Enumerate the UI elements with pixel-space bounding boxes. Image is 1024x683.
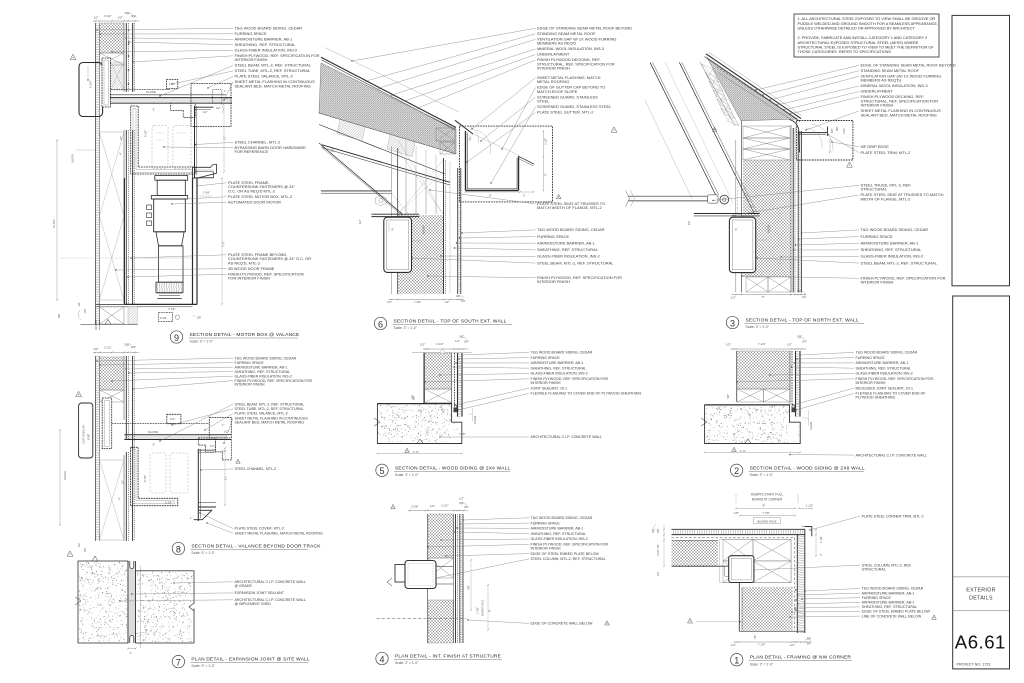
svg-text:3/8": 3/8" — [656, 528, 660, 533]
svg-text:2 1/2": 2 1/2" — [843, 127, 846, 134]
svg-text:5 3/4": 5 3/4" — [89, 81, 93, 88]
svg-text:T&G WOOD BOARD SIDING, CEDAR: T&G WOOD BOARD SIDING, CEDAR — [856, 351, 918, 355]
svg-text:METAL ROOFING: METAL ROOFING — [537, 79, 569, 84]
svg-text:INTERIOR FINISH: INTERIOR FINISH — [861, 280, 894, 285]
svg-text:INTERIOR FINISH: INTERIOR FINISH — [861, 103, 894, 108]
svg-text:3/8": 3/8" — [197, 316, 202, 320]
svg-text:MATCH WIDTH OF FLANGE, MTL-2: MATCH WIDTH OF FLANGE, MTL-2 — [537, 205, 602, 210]
svg-text:BOARD FACE: BOARD FACE — [482, 600, 485, 616]
svg-text:1/2": 1/2" — [387, 300, 392, 304]
svg-text:3/4": 3/4" — [464, 505, 469, 509]
svg-text:Scale: 3" = 1'-0": Scale: 3" = 1'-0" — [746, 325, 770, 329]
svg-text:T&G WOOD BOARD SIDING, CEDAR: T&G WOOD BOARD SIDING, CEDAR — [861, 227, 929, 232]
svg-text:4: 4 — [379, 654, 384, 664]
svg-text:6 1/8": 6 1/8" — [169, 307, 176, 311]
svg-text:3/8": 3/8" — [125, 343, 130, 347]
svg-text:1 7/8": 1 7/8" — [476, 607, 480, 614]
svg-text:ALIGN: ALIGN — [473, 416, 477, 424]
svg-text:ARCHITECTURAL EXPOSED STRUCTUR: ARCHITECTURAL EXPOSED STRUCTURAL STEEL (… — [798, 41, 919, 45]
svg-text:STEEL TUBE, MTL-2, REF. STRUCT: STEEL TUBE, MTL-2, REF. STRUCTURAL — [235, 407, 304, 411]
svg-text:PLATE STEEL VALANCE, MTL-2: PLATE STEEL VALANCE, MTL-2 — [235, 74, 293, 79]
svg-text:1": 1" — [222, 423, 224, 427]
svg-text:Scale: 3" = 1'-0": Scale: 3" = 1'-0" — [750, 662, 774, 666]
svg-text:3 1/2": 3 1/2" — [104, 14, 112, 18]
svg-text:SEALANT BED, MATCH METAL ROOFI: SEALANT BED, MATCH METAL ROOFING — [235, 420, 305, 424]
svg-text:Scale: 3" = 1'-0": Scale: 3" = 1'-0" — [190, 340, 214, 344]
svg-text:PLAN DETAIL - INT. FINISH AT S: PLAN DETAIL - INT. FINISH AT STRUCTURE — [395, 654, 501, 660]
svg-text:SHEATHING, REF. STRUCTURAL: SHEATHING, REF. STRUCTURAL — [537, 247, 599, 252]
svg-text:3: 3 — [730, 318, 735, 328]
svg-text:3": 3" — [819, 553, 823, 556]
svg-text:1/2": 1/2" — [656, 571, 660, 576]
svg-text:1 5/8": 1 5/8" — [459, 433, 466, 436]
svg-text:1/2": 1/2" — [216, 106, 221, 110]
svg-text:GLASS-FIBER INSULATION, INS-2: GLASS-FIBER INSULATION, INS-2 — [856, 372, 913, 376]
svg-text:1/2": 1/2" — [224, 430, 229, 434]
svg-text:9 1/2": 9 1/2" — [143, 475, 147, 482]
svg-text:STEEL CHANNEL, MTL-2: STEEL CHANNEL, MTL-2 — [235, 467, 277, 471]
svg-text:PLATE STEEL GUTTER, MTL-2: PLATE STEEL GUTTER, MTL-2 — [537, 110, 593, 115]
svg-text:1/2": 1/2" — [790, 643, 795, 647]
svg-text:PROJECT NO. 1723: PROJECT NO. 1723 — [957, 663, 991, 667]
svg-text:5/8": 5/8" — [727, 394, 730, 398]
svg-text:SHEATHING, REF. STRUCTURAL: SHEATHING, REF. STRUCTURAL — [235, 370, 291, 374]
svg-text:9: 9 — [174, 333, 179, 343]
svg-text:2": 2" — [523, 194, 526, 198]
svg-text:STEEL BEAM, MTL-2, REF. STRUCT: STEEL BEAM, MTL-2, REF. STRUCTURAL — [537, 260, 614, 265]
svg-text:3/4": 3/4" — [802, 295, 807, 299]
svg-text:Scale: 3" = 1'-0": Scale: 3" = 1'-0" — [191, 664, 215, 668]
svg-text:2B WOOD DOOR FRAME: 2B WOOD DOOR FRAME — [228, 266, 275, 271]
svg-text:EDGE OF STEEL EMBED PLATE BELO: EDGE OF STEEL EMBED PLATE BELOW — [531, 552, 600, 556]
svg-text:STRUCTURAL: STRUCTURAL — [862, 567, 886, 571]
svg-text:1/2": 1/2" — [726, 343, 731, 347]
svg-text:UNDERLAYMENT: UNDERLAYMENT — [537, 52, 570, 57]
svg-text:3 1/2": 3 1/2" — [436, 342, 444, 346]
svg-text:ARCHITECTURAL C.I.P. CONCRETE: ARCHITECTURAL C.I.P. CONCRETE WALL — [531, 435, 602, 439]
svg-text:FOR INTERIOR FINISH: FOR INTERIOR FINISH — [228, 276, 270, 281]
svg-text:FURRING SPACE: FURRING SPACE — [531, 521, 561, 525]
svg-text:12": 12" — [121, 480, 125, 484]
svg-text:@ IMPLEMENT SHED: @ IMPLEMENT SHED — [235, 602, 272, 606]
svg-text:SECTION DETAIL - VALANCE BEYON: SECTION DETAIL - VALANCE BEYOND DOOR TRA… — [191, 544, 321, 550]
svg-text:SHEATHING, REF. STRUCTURAL: SHEATHING, REF. STRUCTURAL — [531, 532, 587, 536]
svg-text:7 1/4": 7 1/4" — [758, 342, 766, 346]
svg-text:STEEL BEAM, MTL-2, REF. STRUCT: STEEL BEAM, MTL-2, REF. STRUCTURAL — [861, 260, 938, 265]
svg-text:1/2": 1/2" — [222, 449, 227, 453]
svg-text:EDGE OF STANDING SEAM METAL RO: EDGE OF STANDING SEAM METAL ROOF BEYOND — [537, 26, 632, 31]
svg-text:5: 5 — [379, 466, 384, 476]
svg-text:8 1/8": 8 1/8" — [160, 316, 167, 320]
svg-text:ALIGN: ALIGN — [809, 422, 813, 430]
svg-text:STEEL CHANNEL, MTL-2: STEEL CHANNEL, MTL-2 — [235, 140, 281, 145]
svg-text:T&G WOOD BOARD SIDING, CEDAR: T&G WOOD BOARD SIDING, CEDAR — [862, 587, 924, 591]
svg-text:SEALANT BED, MATCH METAL ROOFI: SEALANT BED, MATCH METAL ROOFING — [861, 112, 937, 117]
svg-text:ARCHITECTURAL C.I.P. CONCRETE: ARCHITECTURAL C.I.P. CONCRETE WALL — [856, 453, 927, 457]
svg-text:4": 4" — [118, 497, 122, 500]
svg-text:AIR/MOISTURE BARRIER, AB-1: AIR/MOISTURE BARRIER, AB-1 — [862, 601, 915, 605]
svg-text:1/2": 1/2" — [210, 444, 215, 448]
svg-text:3/8": 3/8" — [797, 335, 802, 339]
svg-text:PUDDLE WELDED AND GROUND SMOOT: PUDDLE WELDED AND GROUND SMOOTH FOR A SE… — [798, 22, 939, 26]
svg-text:7 3/4": 7 3/4" — [414, 300, 421, 304]
svg-text:8": 8" — [763, 504, 766, 508]
svg-text:1"x1": 1"x1" — [170, 417, 176, 421]
svg-text:SCREENED GUARD, STAINLESS STEE: SCREENED GUARD, STAINLESS STEEL — [537, 104, 612, 109]
svg-text:GLASS-FIBER INSULATION, INS-2: GLASS-FIBER INSULATION, INS-2 — [235, 48, 298, 53]
svg-text:11 5/8": 11 5/8" — [52, 219, 56, 228]
svg-text:3 1/2": 3 1/2" — [441, 503, 448, 507]
svg-text:FURRING SPACE: FURRING SPACE — [537, 234, 569, 239]
svg-text:AS REQ'D, MTL-2: AS REQ'D, MTL-2 — [228, 260, 260, 265]
svg-text:GLASS-FIBER INSULATION, INS-2: GLASS-FIBER INSULATION, INS-2 — [531, 372, 588, 376]
svg-text:INTERIOR FINISH: INTERIOR FINISH — [531, 547, 561, 551]
svg-text:INTERIOR FINISH: INTERIOR FINISH — [531, 381, 561, 385]
svg-text:STRUCTURAL: STRUCTURAL — [861, 187, 888, 192]
svg-text:5/8": 5/8" — [413, 396, 416, 400]
svg-text:7/8": 7/8" — [443, 409, 446, 413]
svg-text:3/8": 3/8" — [57, 313, 61, 318]
svg-text:SHEATHING, REF. STRUCTURAL: SHEATHING, REF. STRUCTURAL — [861, 247, 923, 252]
svg-text:7/8": 7/8" — [467, 585, 471, 590]
svg-text:STANDING SEAM METAL ROOF: STANDING SEAM METAL ROOF — [537, 31, 596, 36]
svg-text:AUTOMATED DOOR MOTOR: AUTOMATED DOOR MOTOR — [228, 199, 281, 204]
svg-text:1/2": 1/2" — [77, 542, 81, 547]
svg-text:1/2": 1/2" — [787, 343, 792, 347]
svg-text:3 1/2": 3 1/2" — [104, 345, 112, 349]
svg-text:3/4": 3/4" — [831, 129, 834, 133]
svg-text:AIR/MOISTURE BARRIER, AB-1: AIR/MOISTURE BARRIER, AB-1 — [531, 527, 584, 531]
svg-text:O.C. OR AS REQ'D MTL-2: O.C. OR AS REQ'D MTL-2 — [228, 188, 275, 193]
svg-text:3/8": 3/8" — [456, 294, 461, 298]
svg-text:EDGE OF CONCRETE WALL BELOW: EDGE OF CONCRETE WALL BELOW — [531, 622, 593, 626]
svg-text:UNDERLAYMENT: UNDERLAYMENT — [861, 89, 894, 94]
svg-text:MATCH ROOF SLOPE: MATCH ROOF SLOPE — [537, 89, 578, 94]
svg-text:8": 8" — [489, 194, 492, 198]
svg-text:7 7/8": 7 7/8" — [762, 511, 769, 515]
svg-text:3 1/2" 1/2": 3 1/2" 1/2" — [656, 544, 660, 556]
svg-text:EDGE OF STANDING SEAM METAL RO: EDGE OF STANDING SEAM METAL ROOF BEYOND — [861, 63, 956, 68]
svg-text:SLOPE: SLOPE — [146, 90, 156, 94]
svg-text:1/2": 1/2" — [358, 219, 362, 224]
svg-text:MINERAL WOOL INSULATION, INS-3: MINERAL WOOL INSULATION, INS-3 — [537, 46, 605, 51]
svg-text:4": 4" — [119, 152, 123, 155]
svg-text:T&G WOOD BOARD SIDING, CEDAR: T&G WOOD BOARD SIDING, CEDAR — [537, 227, 605, 232]
svg-text:1/2": 1/2" — [331, 147, 335, 152]
svg-text:GLASS-FIBER INSULATION, INS-2: GLASS-FIBER INSULATION, INS-2 — [531, 537, 588, 541]
svg-text:1/2": 1/2" — [430, 504, 435, 508]
svg-text:BOARD AT CORNER: BOARD AT CORNER — [752, 498, 783, 502]
svg-text:BOARD FACE: BOARD FACE — [757, 519, 776, 523]
svg-text:Scale: 3" = 1'-0": Scale: 3" = 1'-0" — [395, 473, 419, 477]
svg-text:1 1/2": 1 1/2" — [806, 504, 813, 508]
svg-text:INTERIOR FINISH: INTERIOR FINISH — [537, 66, 570, 71]
svg-text:2 1/4" OVERLAP: 2 1/4" OVERLAP — [83, 425, 86, 444]
svg-text:PLATE STEEL COVER, MTL-2: PLATE STEEL COVER, MTL-2 — [235, 527, 285, 531]
svg-text:T&G WOOD BOARD SIDING, CEDAR: T&G WOOD BOARD SIDING, CEDAR — [235, 356, 297, 360]
svg-text:MF DRIP EDGE: MF DRIP EDGE — [861, 144, 890, 149]
svg-text:SECTION DETAIL - WOOD SIDING @: SECTION DETAIL - WOOD SIDING @ 2X8 WALL — [750, 465, 865, 471]
svg-text:INTERIOR FINISH: INTERIOR FINISH — [235, 57, 268, 62]
svg-text:Scale: 3" = 1'-0": Scale: 3" = 1'-0" — [750, 473, 774, 477]
svg-text:ALIGN: ALIGN — [422, 226, 426, 234]
svg-text:FURRING SPACE: FURRING SPACE — [531, 356, 561, 360]
svg-text:9 1/2": 9 1/2" — [144, 130, 148, 137]
svg-text:1/2": 1/2" — [118, 16, 123, 20]
svg-text:1/2": 1/2" — [203, 110, 208, 114]
svg-text:AIR/MOISTURE BARRIER, AB-1: AIR/MOISTURE BARRIER, AB-1 — [531, 361, 584, 365]
svg-text:2 3/8": 2 3/8" — [411, 505, 418, 509]
svg-text:MEMBERS AS REQ'D: MEMBERS AS REQ'D — [537, 41, 576, 46]
svg-text:ALIGN: ALIGN — [71, 154, 75, 163]
svg-text:1'-0": 1'-0" — [413, 450, 419, 454]
svg-text:1": 1" — [190, 516, 192, 520]
svg-text:FOR REFERENCE: FOR REFERENCE — [235, 149, 269, 154]
svg-text:DETAILS: DETAILS — [969, 595, 993, 601]
svg-text:ALIGN: ALIGN — [767, 225, 771, 233]
svg-text:THOSE CATEGORIES. REFER TO SPE: THOSE CATEGORIES. REFER TO SPECIFICATION… — [798, 50, 892, 54]
svg-text:6: 6 — [378, 319, 383, 329]
svg-text:3/4": 3/4" — [464, 340, 469, 344]
svg-text:1/2": 1/2" — [94, 347, 99, 351]
svg-text:16": 16" — [119, 136, 123, 140]
svg-text:1": 1" — [143, 574, 146, 578]
svg-text:AIR/MOISTURE BARRIER, AB-1: AIR/MOISTURE BARRIER, AB-1 — [861, 240, 919, 245]
svg-text:PLATE STEEL TRIM, MTL-2: PLATE STEEL TRIM, MTL-2 — [861, 150, 911, 155]
svg-text:INTERIOR FINISH: INTERIOR FINISH — [856, 381, 886, 385]
svg-text:3/4": 3/4" — [461, 299, 466, 303]
svg-text:INTERIOR FINISH: INTERIOR FINISH — [537, 279, 570, 284]
svg-text:AIR/MOISTURE BARRIER, AB-1: AIR/MOISTURE BARRIER, AB-1 — [235, 37, 293, 42]
svg-text:1. ALL ARCHITECTURAL STEEL EXP: 1. ALL ARCHITECTURAL STEEL EXPOSED TO VI… — [798, 17, 936, 21]
svg-text:AIR/MOISTURE BARRIER, AB-1: AIR/MOISTURE BARRIER, AB-1 — [856, 361, 909, 365]
svg-text:PLYWOOD SHEATHING: PLYWOOD SHEATHING — [856, 396, 896, 400]
svg-text:GLASS-FIBER INSULATION, INS-2: GLASS-FIBER INSULATION, INS-2 — [861, 254, 924, 259]
svg-text:3/4": 3/4" — [83, 308, 87, 313]
svg-text:1": 1" — [130, 651, 133, 655]
svg-text:1/4": 1/4" — [418, 410, 422, 413]
svg-text:8": 8" — [392, 228, 395, 232]
svg-text:1": 1" — [224, 89, 226, 93]
svg-text:Scale: 3" = 1'-0": Scale: 3" = 1'-0" — [191, 551, 215, 555]
svg-text:Scale: 3" = 1'-0": Scale: 3" = 1'-0" — [394, 326, 418, 330]
svg-text:7 1/4": 7 1/4" — [758, 642, 765, 646]
svg-text:7: 7 — [176, 658, 181, 668]
svg-text:T&G WOOD BOARD SIDING, CEDAR: T&G WOOD BOARD SIDING, CEDAR — [235, 26, 303, 31]
svg-text:3/4": 3/4" — [807, 642, 812, 646]
svg-text:3/4": 3/4" — [651, 528, 655, 533]
svg-text:3/4": 3/4" — [802, 340, 807, 344]
svg-text:1: 1 — [734, 656, 739, 666]
svg-text:MINERAL WOOL INSULATION, INS-3: MINERAL WOOL INSULATION, INS-3 — [861, 83, 929, 88]
svg-text:STEEL BEAM, MTL-2, REF. STRUCT: STEEL BEAM, MTL-2, REF. STRUCTURAL — [235, 63, 312, 68]
svg-text:1": 1" — [143, 638, 146, 642]
svg-text:FURRING SPACE: FURRING SPACE — [235, 361, 265, 365]
svg-text:SECTION DETAIL - WOOD SIDING @: SECTION DETAIL - WOOD SIDING @ 2X4 WALL — [395, 465, 510, 471]
svg-text:1/2": 1/2" — [420, 343, 425, 347]
svg-text:1/2": 1/2" — [731, 643, 736, 647]
svg-text:1/2": 1/2" — [731, 296, 736, 300]
svg-text:2. PROVIDE, FABRICATE AND INST: 2. PROVIDE, FABRICATE AND INSTALL CATEGO… — [798, 36, 928, 40]
svg-text:AIR/MOISTURE BARRIER, AB-1: AIR/MOISTURE BARRIER, AB-1 — [862, 591, 915, 595]
svg-text:EXTERIOR: EXTERIOR — [966, 588, 995, 594]
svg-text:1/8": 1/8" — [734, 511, 739, 515]
svg-text:PLATE STEEL CORNER TRIM, MTL-2: PLATE STEEL CORNER TRIM, MTL-2 — [862, 514, 924, 518]
svg-text:STANDING SEAM METAL ROOF: STANDING SEAM METAL ROOF — [861, 68, 920, 73]
svg-text:1/2": 1/2" — [445, 300, 450, 304]
svg-text:3/4": 3/4" — [83, 547, 87, 552]
svg-text:ALWAYS START FULL: ALWAYS START FULL — [751, 493, 784, 497]
svg-text:JOINT SEALANT, JS-1: JOINT SEALANT, JS-1 — [531, 386, 568, 390]
svg-text:1 1/2": 1 1/2" — [819, 536, 823, 543]
svg-text:SHEATHING, REF. STRUCTURAL: SHEATHING, REF. STRUCTURAL — [856, 366, 912, 370]
svg-text:1/2": 1/2" — [455, 339, 460, 343]
svg-text:FURRING SPACE: FURRING SPACE — [861, 234, 893, 239]
svg-text:8": 8" — [754, 636, 756, 639]
svg-text:PLAN DETAIL - EXPANSION JOINT: PLAN DETAIL - EXPANSION JOINT @ SITE WAL… — [191, 657, 310, 663]
svg-text:1 1/4": 1 1/4" — [730, 409, 733, 416]
svg-text:6 3/4": 6 3/4" — [165, 500, 172, 504]
svg-text:T&G WOOD BOARD SIDING, CEDAR: T&G WOOD BOARD SIDING, CEDAR — [531, 516, 593, 520]
svg-text:11": 11" — [223, 136, 227, 140]
svg-text:MEMBERS AS REQ'D): MEMBERS AS REQ'D) — [861, 78, 902, 83]
svg-text:FURRING SPACE: FURRING SPACE — [862, 596, 892, 600]
svg-text:6": 6" — [143, 606, 146, 610]
svg-text:AIR/MOISTURE BARRIER, AB-1: AIR/MOISTURE BARRIER, AB-1 — [537, 240, 595, 245]
svg-text:EDGE OF STEEL EMBED PLATE BELO: EDGE OF STEEL EMBED PLATE BELOW — [862, 610, 931, 614]
svg-text:FLEXIBLE FLASHING TO COVER END: FLEXIBLE FLASHING TO COVER END OF PLYWOO… — [531, 392, 642, 396]
svg-text:SECTION DETAIL - TOP OF NORTH: SECTION DETAIL - TOP OF NORTH EXT. WALL — [746, 318, 859, 324]
svg-text:PLATE STEEL MOTOR BOX, MTL-2: PLATE STEEL MOTOR BOX, MTL-2 — [228, 194, 292, 199]
svg-text:WIDTH OF FLANGE, MTL-2: WIDTH OF FLANGE, MTL-2 — [861, 196, 911, 201]
svg-text:3 1/2": 3 1/2" — [544, 138, 548, 145]
svg-text:5": 5" — [153, 442, 156, 446]
svg-text:Scale: 3" = 1'-0": Scale: 3" = 1'-0" — [395, 661, 419, 665]
svg-text:PLAN DETAIL - FRAMING @ NW COR: PLAN DETAIL - FRAMING @ NW CORNER — [750, 655, 852, 661]
svg-text:AIR/MOISTURE BARRIER, AB-1: AIR/MOISTURE BARRIER, AB-1 — [235, 365, 288, 369]
svg-text:7'-6": 7'-6" — [222, 241, 226, 247]
svg-text:RECESSED JOINT SEALANT, JS-1: RECESSED JOINT SEALANT, JS-1 — [856, 386, 913, 390]
svg-text:INTERIOR FINISH: INTERIOR FINISH — [235, 383, 265, 387]
svg-text:SECTION DETAIL - MOTOR BOX @ V: SECTION DETAIL - MOTOR BOX @ VALANCE — [190, 332, 300, 338]
svg-text:2: 2 — [734, 466, 739, 476]
svg-text:ALIGN: ALIGN — [63, 471, 67, 480]
svg-text:SHEATHING, REF. STRUCTURAL: SHEATHING, REF. STRUCTURAL — [235, 42, 297, 47]
svg-text:1'-0": 1'-0" — [740, 449, 746, 453]
svg-text:SLOPE: SLOPE — [148, 430, 158, 434]
svg-text:@ GRADE: @ GRADE — [235, 584, 253, 588]
svg-text:1/2": 1/2" — [77, 302, 81, 307]
svg-text:6 3/8": 6 3/8" — [88, 433, 91, 440]
svg-text:LINE OF CONCRETE WALL BELOW: LINE OF CONCRETE WALL BELOW — [862, 614, 922, 618]
svg-text:STEEL: STEEL — [537, 99, 550, 104]
svg-text:SHEATHING, REF. STRUCTURAL: SHEATHING, REF. STRUCTURAL — [862, 605, 918, 609]
svg-text:8": 8" — [762, 295, 765, 299]
svg-text:1/2": 1/2" — [94, 16, 99, 20]
svg-text:5": 5" — [153, 108, 156, 112]
svg-text:EXPANSION JOINT SEALANT: EXPANSION JOINT SEALANT — [235, 591, 285, 595]
svg-text:1/2": 1/2" — [687, 220, 691, 225]
svg-text:3": 3" — [544, 173, 548, 176]
svg-text:A6.61: A6.61 — [955, 632, 1006, 653]
svg-text:SHEATHING, REF. STRUCTURAL: SHEATHING, REF. STRUCTURAL — [531, 366, 587, 370]
svg-text:2 3/4": 2 3/4" — [203, 191, 210, 195]
svg-text:GLASS-FIBER INSULATION, INS-2: GLASS-FIBER INSULATION, INS-2 — [537, 254, 600, 259]
svg-text:STRUCTURAL STEEL IS EXPOSED TO: STRUCTURAL STEEL IS EXPOSED TO VIEW TO M… — [798, 46, 935, 50]
svg-text:STEEL TUBE, MTL-2, REF. STRUCT: STEEL TUBE, MTL-2, REF. STRUCTURAL — [235, 68, 312, 73]
svg-text:T&G WOOD BOARD SIDING, CEDAR: T&G WOOD BOARD SIDING, CEDAR — [531, 351, 593, 355]
svg-text:SHEET METAL FLASHING, MATCH ME: SHEET METAL FLASHING, MATCH METAL ROOFIN… — [235, 531, 324, 535]
svg-text:UNLESS OTHERWISE DETAILED OR A: UNLESS OTHERWISE DETAILED OR APPROVED BY… — [798, 27, 916, 31]
svg-text:8: 8 — [176, 544, 181, 554]
svg-text:FURRING SPACE: FURRING SPACE — [235, 31, 267, 36]
svg-text:3/8": 3/8" — [459, 335, 464, 339]
svg-text:SECTION DETAIL - TOP OF SOUTH: SECTION DETAIL - TOP OF SOUTH EXT. WALL — [394, 319, 507, 325]
svg-text:3/8": 3/8" — [836, 127, 839, 131]
svg-text:SEALANT BED, MATCH METAL ROOFI: SEALANT BED, MATCH METAL ROOFING — [235, 83, 311, 88]
svg-text:11": 11" — [224, 476, 228, 480]
svg-text:FURRING SPACE: FURRING SPACE — [856, 356, 886, 360]
svg-text:GLASS-FIBER INSULATION, INS-2: GLASS-FIBER INSULATION, INS-2 — [235, 374, 292, 378]
svg-text:PLATE STEEL VALANCE, MTL-2: PLATE STEEL VALANCE, MTL-2 — [235, 412, 288, 416]
svg-text:STEEL COLUMN, MTL-2, REF. STRU: STEEL COLUMN, MTL-2, REF. STRUCTURAL — [531, 557, 606, 561]
svg-text:STEEL BEAM, MTL-2, REF. STRUCT: STEEL BEAM, MTL-2, REF. STRUCTURAL — [235, 402, 305, 406]
svg-text:8": 8" — [735, 228, 738, 232]
svg-text:1/2": 1/2" — [459, 497, 464, 501]
